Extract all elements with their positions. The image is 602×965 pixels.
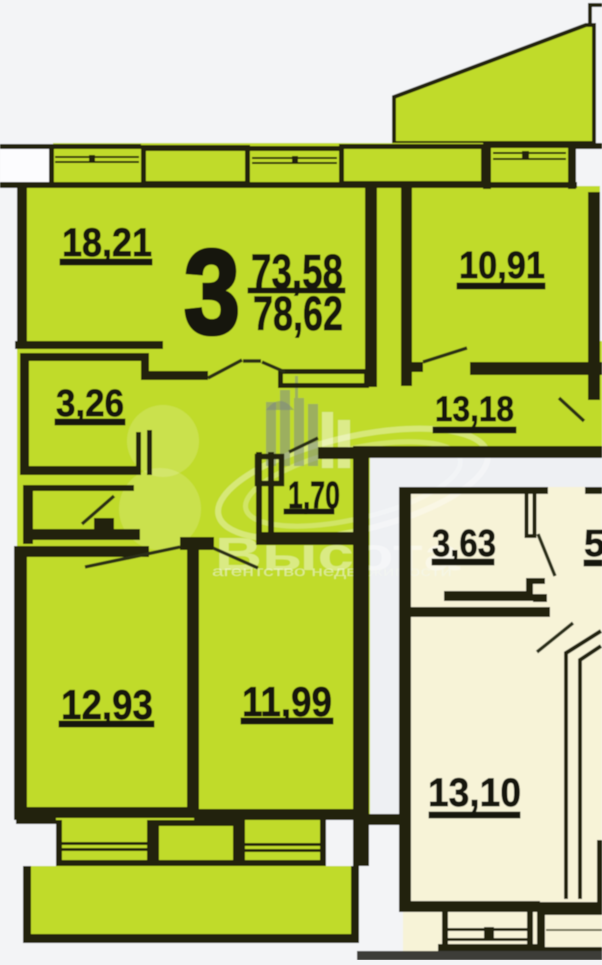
svg-text:18,21: 18,21 [62,221,152,265]
svg-text:5,9: 5,9 [584,523,602,565]
svg-text:13,18: 13,18 [435,390,514,429]
svg-text:3: 3 [184,225,240,359]
svg-text:13,10: 13,10 [428,771,521,815]
svg-text:10,91: 10,91 [459,245,545,287]
svg-text:78,62: 78,62 [253,288,343,341]
